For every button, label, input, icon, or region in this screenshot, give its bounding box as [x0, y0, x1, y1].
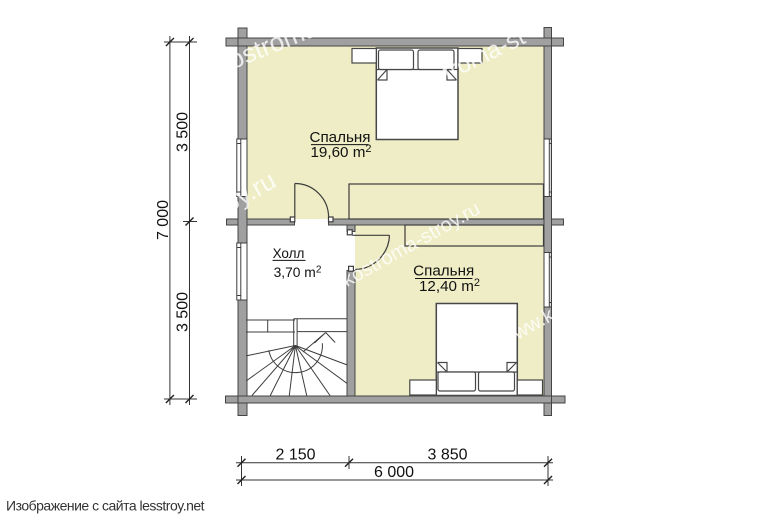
svg-text:Изображение с сайта lesstroy.n: Изображение с сайта lesstroy.net: [6, 498, 205, 514]
svg-text:Холл: Холл: [273, 246, 305, 261]
svg-text:2 150: 2 150: [275, 447, 315, 464]
svg-text:19,60 m2: 19,60 m2: [310, 143, 371, 161]
svg-text:3 500: 3 500: [175, 292, 192, 332]
svg-text:6 000: 6 000: [374, 464, 414, 481]
svg-text:3 500: 3 500: [175, 112, 192, 152]
svg-text:12,40 m2: 12,40 m2: [419, 277, 480, 295]
svg-text:7 000: 7 000: [155, 200, 172, 240]
svg-text:3,70 m2: 3,70 m2: [274, 265, 322, 281]
svg-text:3 850: 3 850: [427, 447, 467, 464]
